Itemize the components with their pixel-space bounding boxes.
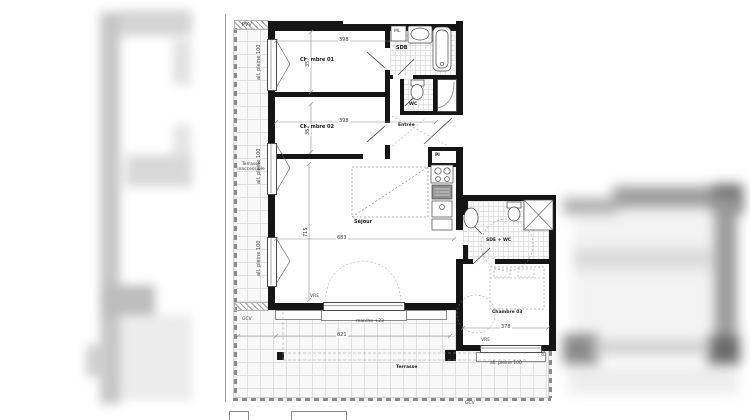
chambre3-label: Chambre 03 xyxy=(492,311,523,316)
allege-label-2: all. pleine 100 xyxy=(257,149,262,184)
terrasse-label: Terrasse xyxy=(396,366,417,371)
pvv-label-top: PVV xyxy=(242,23,252,28)
gcv-label-left: GCV xyxy=(242,318,252,323)
legend-box-2 xyxy=(291,411,347,420)
adjacent-plan-left-blurred xyxy=(78,0,198,420)
blur-shape xyxy=(593,341,711,355)
terrasse-inaccessible-label: Terrasse inaccessible xyxy=(232,162,270,173)
entree-label: Entrée xyxy=(398,124,415,129)
blur-shape xyxy=(100,285,155,317)
washing-machine-label: ML xyxy=(394,30,400,35)
blur-shape xyxy=(568,366,738,394)
blur-shape xyxy=(120,315,192,400)
blur-shape xyxy=(563,198,618,214)
chambre3-width: 378 xyxy=(500,325,512,330)
marche-label: marche +23 xyxy=(356,320,384,325)
floorplan-page: PVV Terrasse inaccessible all. pleine 10… xyxy=(0,0,750,420)
allege-label-3: all. pleine 100 xyxy=(257,241,262,276)
wc-fixtures xyxy=(411,80,454,108)
blur-shape xyxy=(708,336,740,364)
main-floorplan: PVV Terrasse inaccessible all. pleine 10… xyxy=(228,8,558,408)
gcv-label-bottom: GCV xyxy=(465,402,475,407)
vre-label-sejour: VRE xyxy=(310,295,319,300)
chambre2-depth: 352 xyxy=(306,124,311,136)
blur-shape xyxy=(173,40,191,85)
window-center-lines xyxy=(271,39,540,348)
placard-label: Pl xyxy=(435,154,440,159)
kitchen-zone xyxy=(352,167,428,217)
entry-guides xyxy=(325,116,448,301)
overall-dimension-line xyxy=(225,14,226,402)
blur-shape xyxy=(573,248,713,270)
chambre2-width: 398 xyxy=(338,119,350,124)
sde-wc-label: SDE + WC xyxy=(486,239,511,244)
blur-shape xyxy=(86,345,106,377)
chambre1-width: 398 xyxy=(338,38,350,43)
blur-shape xyxy=(126,155,192,187)
chambre1-depth: 357 xyxy=(306,56,311,68)
door-leaves xyxy=(367,52,490,264)
sejour-label: Séjour xyxy=(354,220,372,225)
adjacent-plan-right-blurred xyxy=(563,176,750,396)
vre-label-chambre3: VRE xyxy=(481,339,490,344)
legend-box-1 xyxy=(229,411,249,420)
sejour-width: 683 xyxy=(336,236,348,241)
allege-label-1: all. pleine 100 xyxy=(257,45,262,80)
pvv-label-right: PVV xyxy=(543,347,548,356)
allege-label-chambre3: all. pleine 100 xyxy=(490,362,522,367)
plan-linework xyxy=(228,8,558,408)
blur-shape xyxy=(120,10,192,36)
blur-shape xyxy=(573,211,715,341)
kitchen-fixtures xyxy=(431,165,453,230)
sdb-label: SDB xyxy=(396,46,408,51)
sejour-depth: 715 xyxy=(304,226,309,238)
wc-label: WC xyxy=(409,103,417,108)
casement-window-swings xyxy=(276,40,290,284)
terrasse-width: 821 xyxy=(336,333,348,338)
